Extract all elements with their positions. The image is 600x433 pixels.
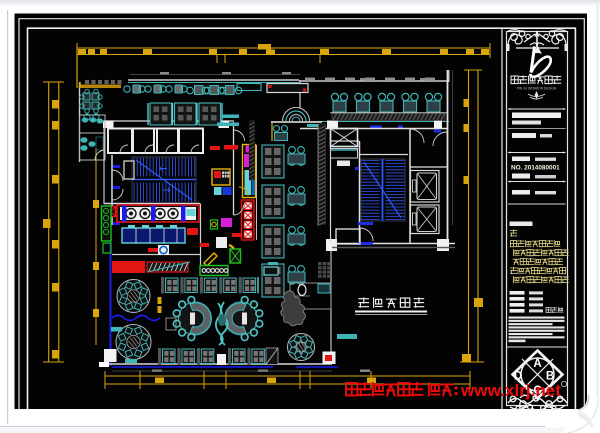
svg-text:NO. 2014080001: NO. 2014080001 [511,165,560,172]
svg-text:PIN JU INTERIOR DESIGN: PIN JU INTERIOR DESIGN [517,87,557,91]
svg-text:A: A [533,358,541,370]
svg-text:www.xlrj.net: www.xlrj.net [460,381,561,400]
